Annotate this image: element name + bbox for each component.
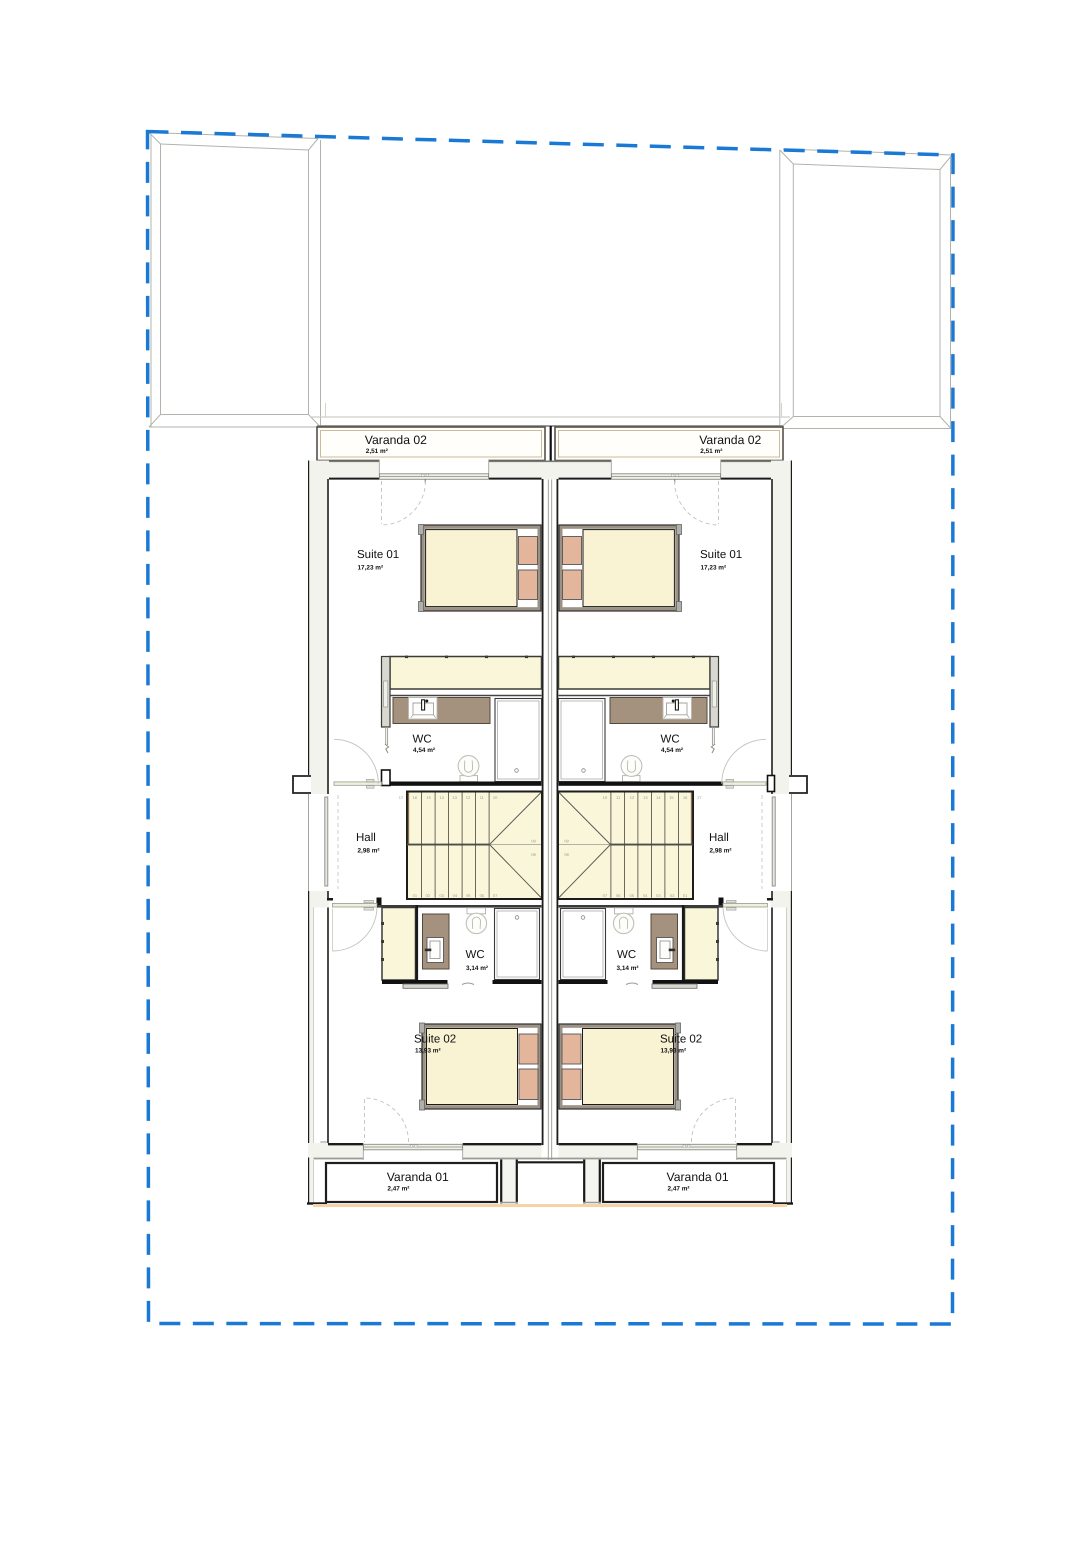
svg-text:17,23 m²: 17,23 m² — [358, 564, 384, 571]
svg-text:2,47 m²: 2,47 m² — [668, 1186, 690, 1193]
svg-text:13: 13 — [643, 795, 648, 800]
svg-text:14: 14 — [656, 795, 661, 800]
svg-text:Hall: Hall — [356, 832, 376, 844]
svg-text:Hall: Hall — [709, 832, 729, 844]
svg-text:07: 07 — [603, 893, 608, 898]
svg-text:05: 05 — [466, 893, 471, 898]
svg-text:WC: WC — [661, 734, 680, 746]
svg-text:2,47 m²: 2,47 m² — [387, 1186, 409, 1193]
svg-text:4,54 m²: 4,54 m² — [413, 747, 435, 754]
svg-text:13,93 m²: 13,93 m² — [661, 1047, 687, 1054]
svg-text:2,98 m²: 2,98 m² — [710, 848, 732, 855]
svg-text:14: 14 — [439, 795, 444, 800]
svg-text:12: 12 — [466, 795, 471, 800]
svg-text:05: 05 — [629, 893, 634, 898]
svg-text:03: 03 — [439, 893, 444, 898]
svg-text:2,51 m²: 2,51 m² — [366, 448, 388, 455]
svg-text:2,51 m²: 2,51 m² — [700, 448, 722, 455]
svg-text:16: 16 — [413, 795, 418, 800]
svg-text:15: 15 — [426, 795, 431, 800]
svg-text:03: 03 — [656, 893, 661, 898]
svg-text:3,14 m²: 3,14 m² — [466, 965, 488, 972]
svg-text:04: 04 — [453, 893, 458, 898]
svg-text:Varanda 01: Varanda 01 — [387, 1170, 449, 1184]
svg-text:08: 08 — [531, 852, 536, 857]
svg-text:04: 04 — [643, 893, 648, 898]
svg-text:13: 13 — [452, 795, 457, 800]
svg-text:17,23 m²: 17,23 m² — [701, 564, 727, 571]
svg-text:10: 10 — [603, 795, 608, 800]
svg-text:16: 16 — [683, 795, 688, 800]
svg-text:Varanda 01: Varanda 01 — [667, 1170, 729, 1184]
svg-text:08: 08 — [564, 852, 569, 857]
svg-text:WC: WC — [617, 949, 636, 961]
svg-text:13,93 m²: 13,93 m² — [415, 1047, 441, 1054]
svg-text:4,54 m²: 4,54 m² — [661, 747, 683, 754]
svg-text:Varanda 02: Varanda 02 — [365, 433, 427, 447]
svg-text:02: 02 — [670, 893, 675, 898]
svg-text:06: 06 — [616, 893, 621, 898]
svg-text:WC: WC — [466, 949, 485, 961]
svg-text:15: 15 — [669, 795, 674, 800]
svg-text:02: 02 — [426, 893, 431, 898]
svg-text:Varanda 02: Varanda 02 — [699, 433, 761, 447]
svg-text:10: 10 — [493, 795, 498, 800]
svg-text:17: 17 — [399, 795, 404, 800]
svg-text:Suite 01: Suite 01 — [700, 549, 742, 561]
svg-text:07: 07 — [493, 893, 498, 898]
svg-text:3,14 m²: 3,14 m² — [617, 965, 639, 972]
svg-text:WC: WC — [413, 734, 432, 746]
svg-text:Suite 02: Suite 02 — [414, 1033, 456, 1045]
svg-text:Suite 02: Suite 02 — [660, 1033, 702, 1045]
svg-text:01: 01 — [683, 893, 688, 898]
svg-text:2,98 m²: 2,98 m² — [358, 848, 380, 855]
svg-text:06: 06 — [480, 893, 485, 898]
svg-text:12: 12 — [630, 795, 635, 800]
svg-text:09: 09 — [531, 839, 536, 844]
svg-text:09: 09 — [564, 839, 569, 844]
svg-text:Suite 01: Suite 01 — [357, 549, 399, 561]
svg-text:01: 01 — [413, 893, 418, 898]
svg-text:17: 17 — [697, 795, 702, 800]
